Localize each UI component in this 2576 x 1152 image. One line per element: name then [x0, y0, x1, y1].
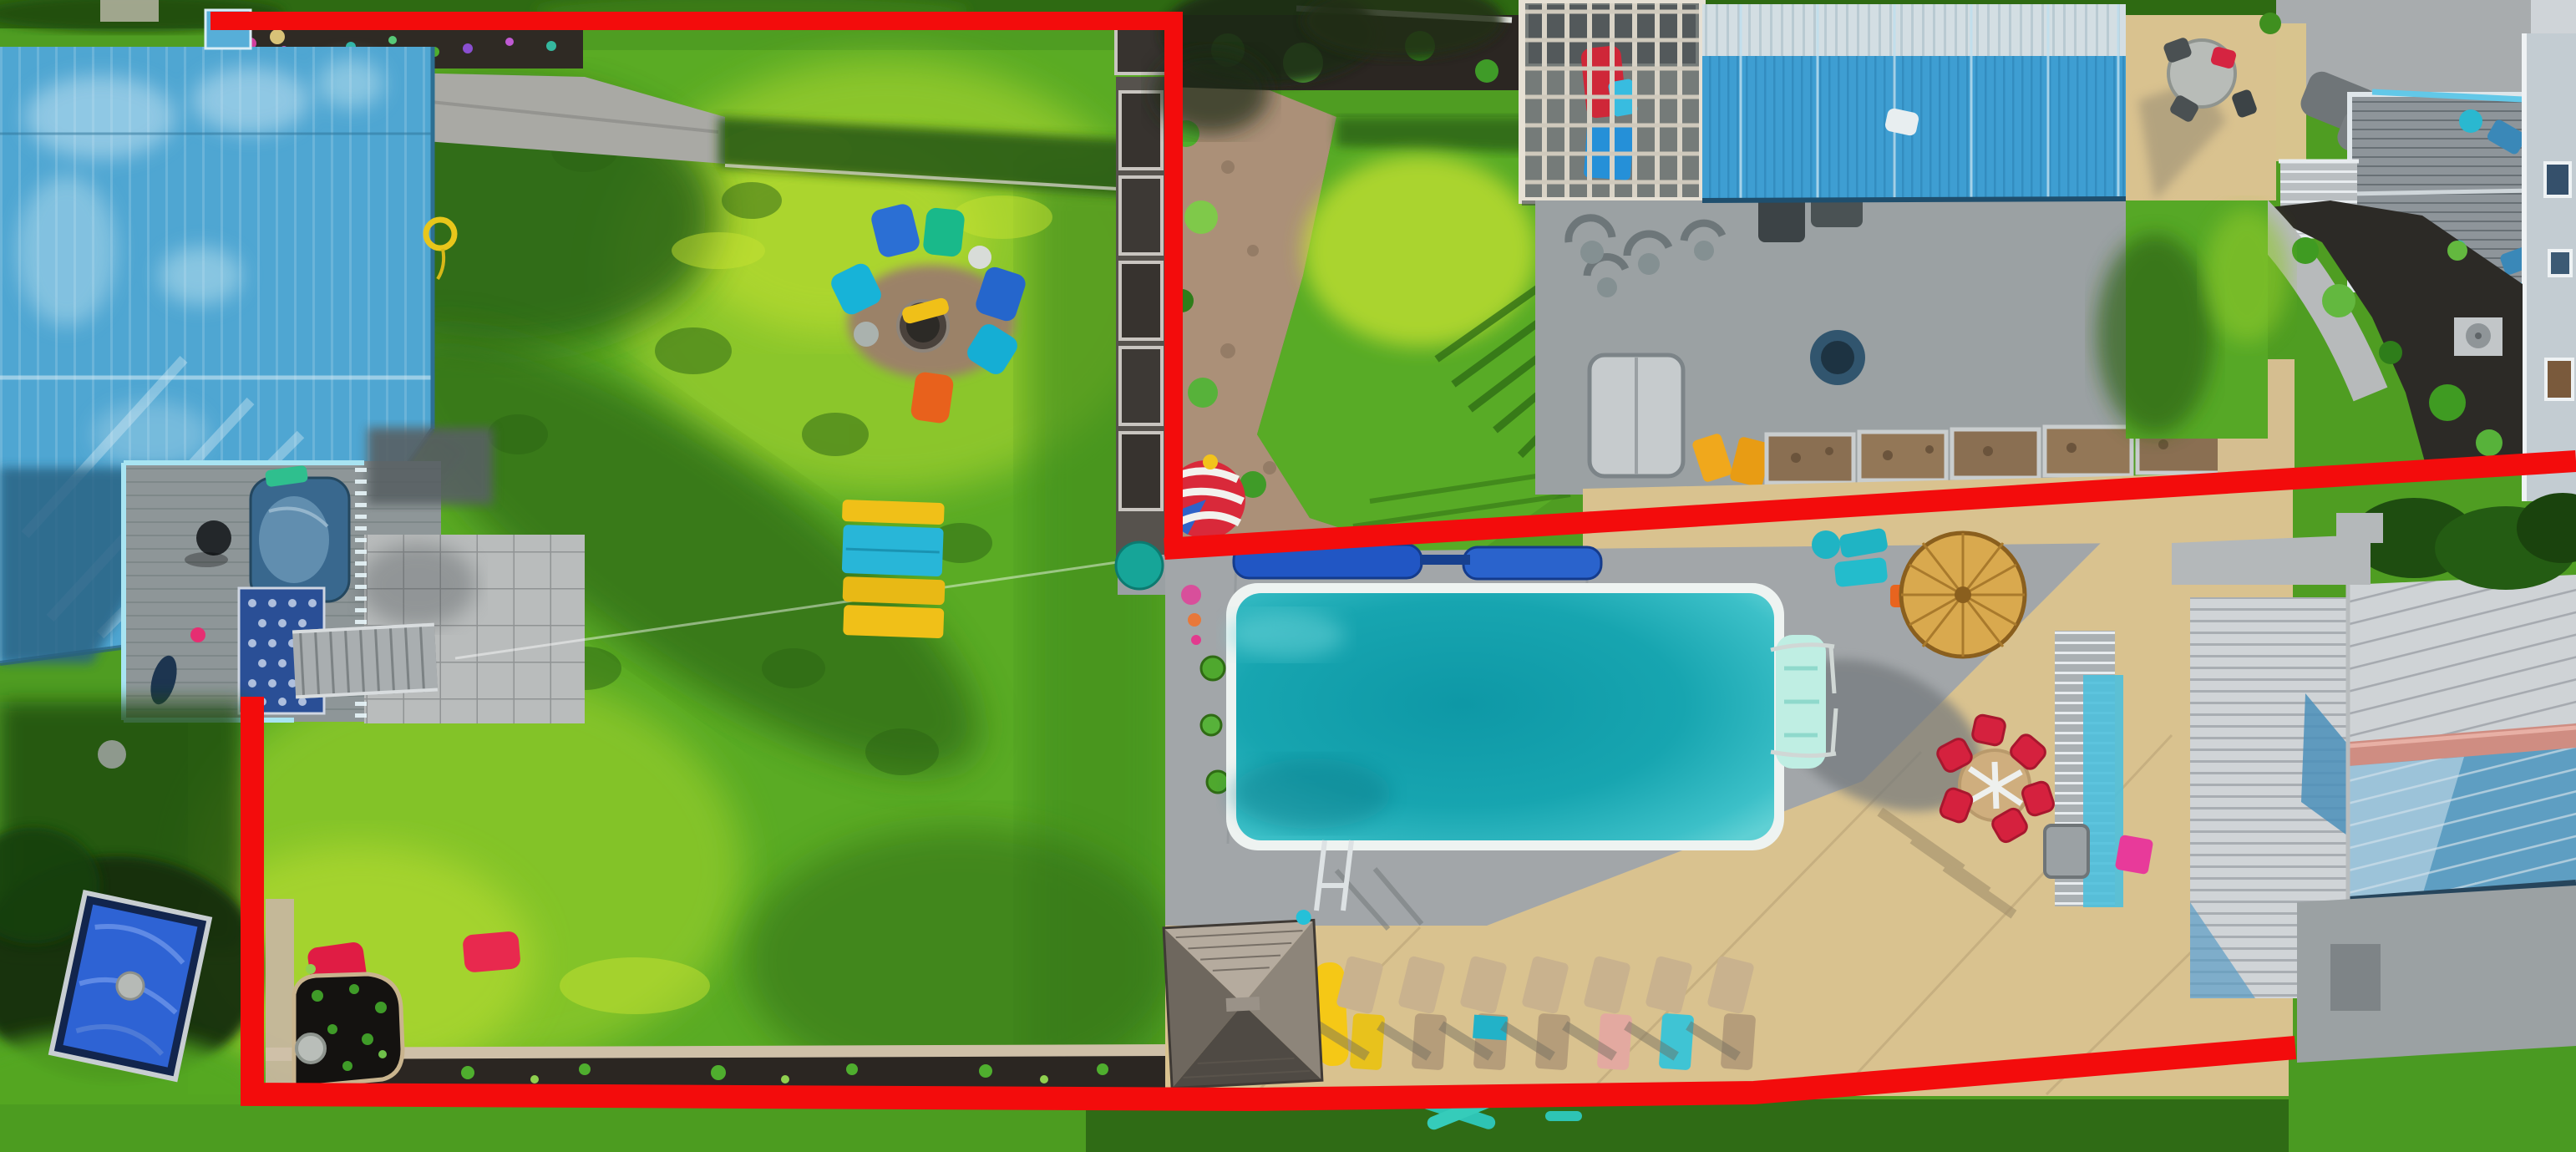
property-boundary-west-and-south-boundary [252, 697, 2295, 1099]
property-boundary-overlay [0, 0, 2576, 1152]
property-boundary-north-and-east-boundary [210, 21, 1174, 556]
screenshot-root [0, 0, 2576, 1152]
property-boundary-middle-boundary [1164, 461, 2576, 549]
